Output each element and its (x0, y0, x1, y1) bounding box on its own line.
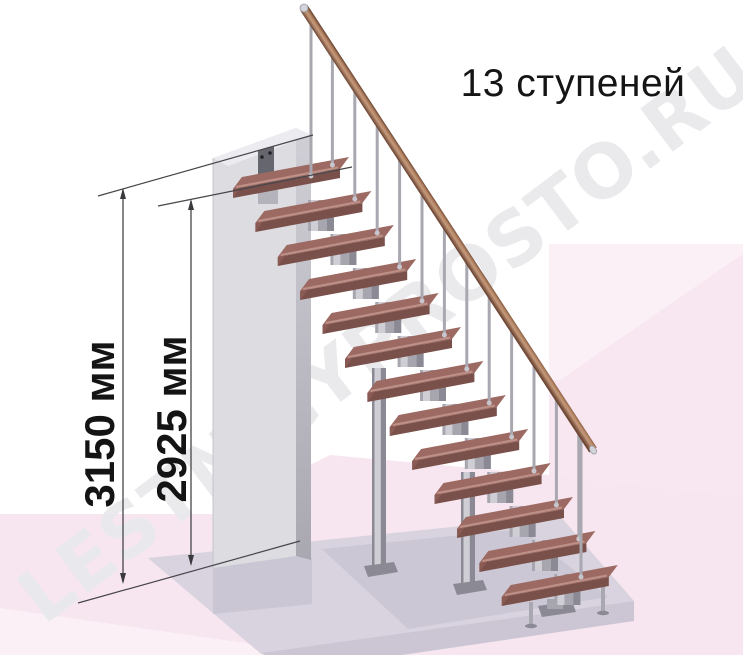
baluster-joint (375, 231, 380, 236)
baluster-joint (509, 435, 514, 440)
baluster-joint (554, 503, 559, 508)
baluster-joint (464, 367, 469, 372)
dimension-arrow (120, 573, 126, 584)
baluster-joint (397, 265, 402, 270)
staircase-diagram: LESTNICYPROSTO.RU 3150 мм 2925 мм 13 сту… (0, 0, 743, 655)
baluster-joint (330, 163, 335, 168)
baluster-joint (420, 299, 425, 304)
leg-foot (597, 611, 609, 615)
baluster-joint (442, 333, 447, 338)
dimension-arrow (188, 199, 194, 210)
dimension-label-total-height: 3150 мм (76, 340, 124, 507)
wall-side-face (296, 128, 311, 560)
baluster-joint (579, 575, 584, 580)
upper-wall (213, 128, 311, 568)
handrail-top-cap (300, 4, 308, 12)
steps-count-label: 13 ступеней (461, 62, 686, 106)
dimension-label-to-top-step: 2925 мм (148, 335, 196, 502)
baluster-joint (487, 401, 492, 406)
mount-bolt (260, 155, 264, 159)
baluster-joint (532, 469, 537, 474)
leg-foot (525, 624, 537, 628)
wall-front-face (213, 128, 296, 568)
mount-bolt (268, 151, 272, 155)
baluster-joint (352, 197, 357, 202)
